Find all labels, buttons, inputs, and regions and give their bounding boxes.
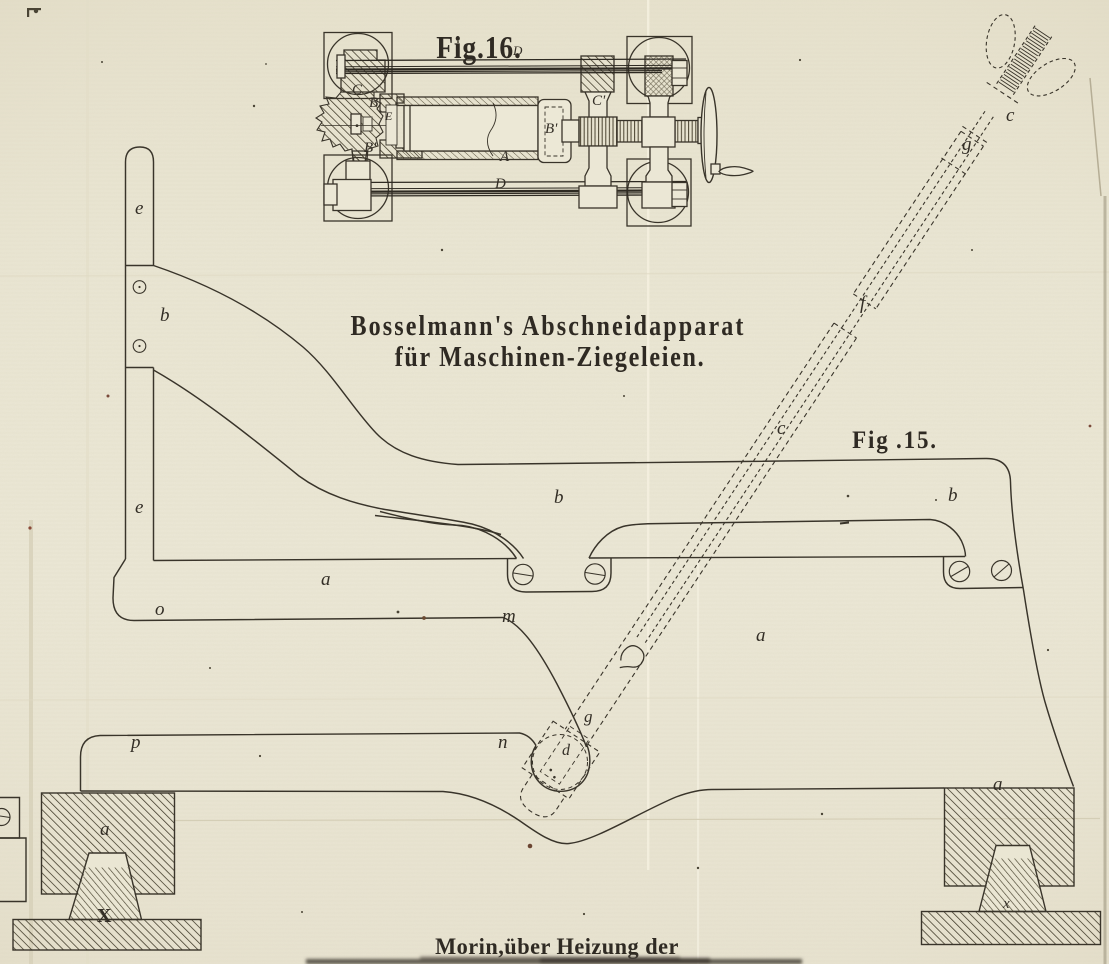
svg-text:o: o [155,599,165,620]
svg-text:E: E [384,109,393,123]
svg-text:p: p [129,732,141,753]
svg-text:Bosselmann's Abschneidapparat: Bosselmann's Abschneidapparat [350,309,745,341]
svg-text:e: e [135,497,143,518]
svg-text:d: d [562,742,571,759]
svg-text:c: c [777,418,786,439]
svg-text:B: B [369,95,378,111]
svg-text:X: X [97,905,112,927]
svg-text:e: e [135,198,143,219]
svg-text:C: C [352,82,363,98]
svg-text:B': B' [364,140,377,156]
svg-text:n: n [498,732,508,753]
svg-text:D: D [494,176,506,192]
svg-text:b: b [160,305,170,326]
svg-text:a: a [321,569,331,590]
svg-text:B': B' [545,121,558,137]
svg-text:b: b [554,487,564,508]
svg-text:A: A [499,149,510,165]
svg-text:g: g [962,134,972,155]
svg-text:a: a [100,819,110,840]
svg-text:Fig.16.: Fig.16. [436,30,521,65]
svg-text:Fig .15.: Fig .15. [852,427,938,454]
svg-text:C': C' [592,93,606,109]
svg-text:Morin,über Heizung der: Morin,über Heizung der [435,934,679,959]
svg-text:a: a [993,774,1003,795]
svg-text:c: c [1006,105,1015,126]
svg-text:für Maschinen-Ziegeleien.: für Maschinen-Ziegeleien. [395,340,706,372]
svg-text:x: x [1002,896,1010,912]
svg-text:g: g [584,707,593,726]
svg-text:b: b [948,485,958,506]
svg-text:m: m [502,606,516,627]
svg-text:a: a [756,625,766,646]
